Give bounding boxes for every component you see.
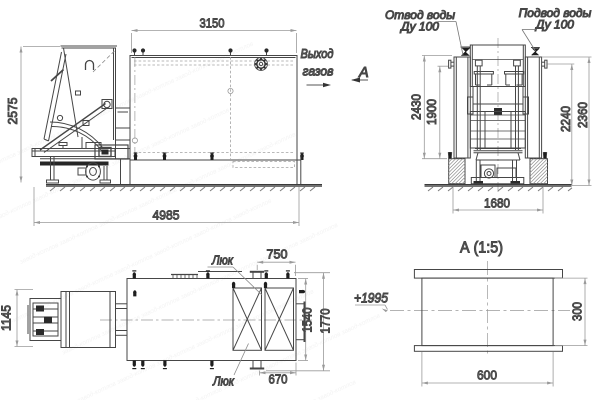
svg-text:А (1:5): А (1:5) xyxy=(460,240,503,257)
svg-text:1680: 1680 xyxy=(484,196,510,211)
svg-text:750: 750 xyxy=(267,247,288,262)
svg-text:600: 600 xyxy=(477,368,497,383)
svg-text:завод-котлов завод-котлов за: завод-котлов завод-котлов завод-котлов з… xyxy=(17,130,297,266)
svg-text:Люк: Люк xyxy=(211,254,234,268)
svg-text:Ду 100: Ду 100 xyxy=(534,18,574,32)
svg-text:1770: 1770 xyxy=(318,309,333,334)
svg-text:670: 670 xyxy=(269,372,288,387)
svg-text:2240: 2240 xyxy=(558,106,573,132)
svg-text:1900: 1900 xyxy=(424,99,439,125)
svg-text:газов: газов xyxy=(303,65,334,79)
svg-text:1540: 1540 xyxy=(300,308,315,333)
svg-text:2360: 2360 xyxy=(575,102,590,128)
svg-text:2430: 2430 xyxy=(409,94,424,120)
svg-text:Люк: Люк xyxy=(212,375,235,389)
svg-text:300: 300 xyxy=(570,302,585,321)
svg-text:4985: 4985 xyxy=(153,208,180,223)
svg-text:2575: 2575 xyxy=(5,98,20,125)
svg-text:Выход: Выход xyxy=(301,47,334,61)
svg-text:завод-котлов завод-котлов за: завод-котлов завод-котлов завод-котлов з… xyxy=(60,221,340,357)
svg-text:Ду 100: Ду 100 xyxy=(399,20,439,34)
svg-text:1145: 1145 xyxy=(0,305,14,331)
svg-text:3150: 3150 xyxy=(200,16,225,31)
svg-text:+1995: +1995 xyxy=(354,291,388,306)
